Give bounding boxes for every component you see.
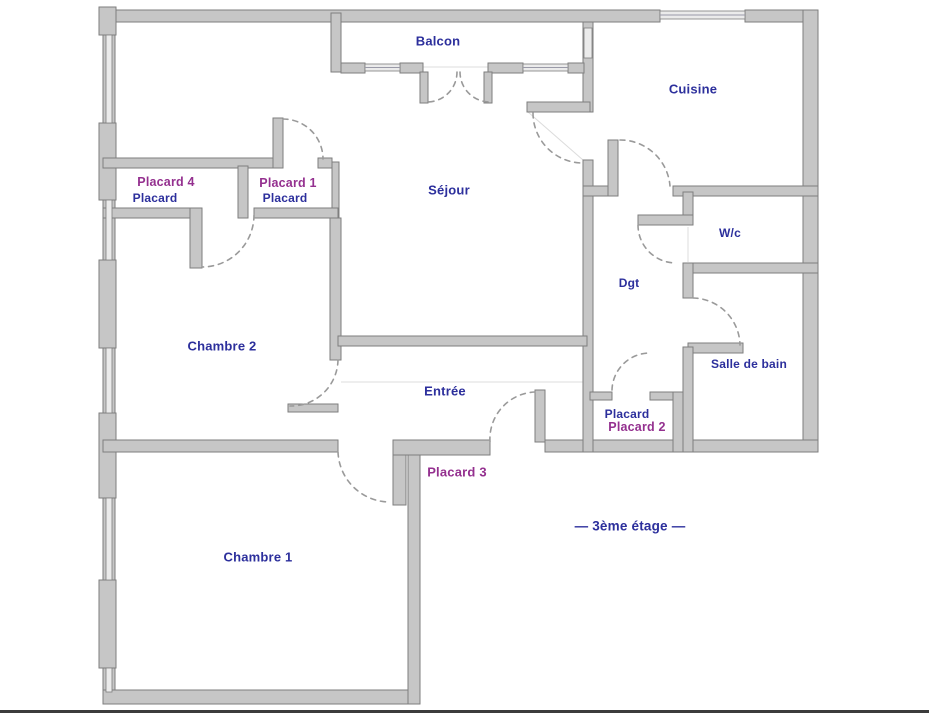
balcony-sill [568,63,584,73]
entry-door-arc [490,392,535,442]
floorplan-canvas: Balcon Cuisine Séjour W/c Dgt Salle de b… [0,0,929,720]
bottom-outer-wall [103,690,420,704]
top-wall-left [103,10,660,22]
balcony-door-leaf [484,72,492,103]
placard2-east-wall [673,392,683,452]
closet-label-placard2-original: Placard [605,407,650,421]
guide-lines-layer [341,67,688,382]
cuisine-south-wall-right [673,186,818,196]
placard-row-bottom-wall-left [103,208,190,218]
sejour-door-leaf-wall [527,102,590,112]
placard4-door-arc [202,215,254,267]
balcony-door-leaf [420,72,428,103]
cuisine-door-stub [608,140,618,196]
placard1-door-jamb [273,118,283,168]
floorplan-drawing [0,0,929,720]
balcony-side-window [584,28,592,58]
wc-door-arc [638,225,676,263]
bath-west-wall-upper [683,263,693,298]
closet-label-placard2: Placard 2 [608,420,665,434]
chambre2-south-wall [103,440,338,452]
left-wall-block [99,580,116,668]
walls-layer [99,7,818,704]
closet-label-placard1-original: Placard [263,191,308,205]
left-wall-corner-block [99,7,116,35]
balcony-left-wall [331,13,341,72]
placard4-door-jamb [190,208,202,268]
room-label-sejour: Séjour [428,183,470,198]
bottom-divider-line [0,710,929,713]
left-wall-window [106,498,112,580]
floor-caption: — 3ème étage — [575,519,686,534]
left-wall-block [99,413,116,498]
room-label-wc: W/c [719,226,741,240]
wc-south-wall [683,263,818,273]
left-wall-window [106,348,112,413]
left-wall-block [99,260,116,348]
central-wall-lower [583,160,593,452]
bath-door-stub [688,343,743,353]
placard-divider-wall [238,166,248,218]
room-label-chambre1: Chambre 1 [224,550,293,565]
closet-label-placard1: Placard 1 [259,176,316,190]
left-wall-window [106,200,112,260]
left-wall-window [106,35,112,123]
bath-door-arc [693,298,740,345]
placard2-top-wall-left [590,392,612,400]
placard2-door-arc [612,353,650,390]
placard1-door-arc [283,119,323,159]
closet-label-placard4: Placard 4 [137,175,194,189]
wc-door-stub [638,215,693,225]
placard-row-bottom-wall-right [254,208,338,218]
entree-south-wall-left [393,440,490,455]
room-label-balcon: Balcon [416,34,461,49]
left-wall-window [106,668,112,692]
sejour-south-wall [338,336,587,346]
placard-row-top-wall-right [318,158,332,168]
closet-label-placard3: Placard 3 [427,465,487,480]
chambre1-door-arc [338,452,390,502]
room-label-dgt: Dgt [619,276,640,290]
chambre2-door-arc [290,360,338,406]
entry-door-jamb [535,390,545,442]
room-label-chambre2: Chambre 2 [188,339,257,354]
cuisine-door-arc [620,140,670,186]
bath-west-wall-lower [683,347,693,452]
chambre2-door-stub [288,404,338,412]
room-label-entree: Entrée [424,384,466,399]
balcony-door-arc-left [427,72,457,102]
closet-label-placard4-original: Placard [133,191,178,205]
room-label-cuisine: Cuisine [669,82,717,97]
room-label-salle-de-bain: Salle de bain [711,357,787,371]
right-outer-wall [803,10,818,452]
balcony-sill [341,63,365,73]
chambre1-right-wall [408,450,420,704]
balcony-sill [488,63,523,73]
